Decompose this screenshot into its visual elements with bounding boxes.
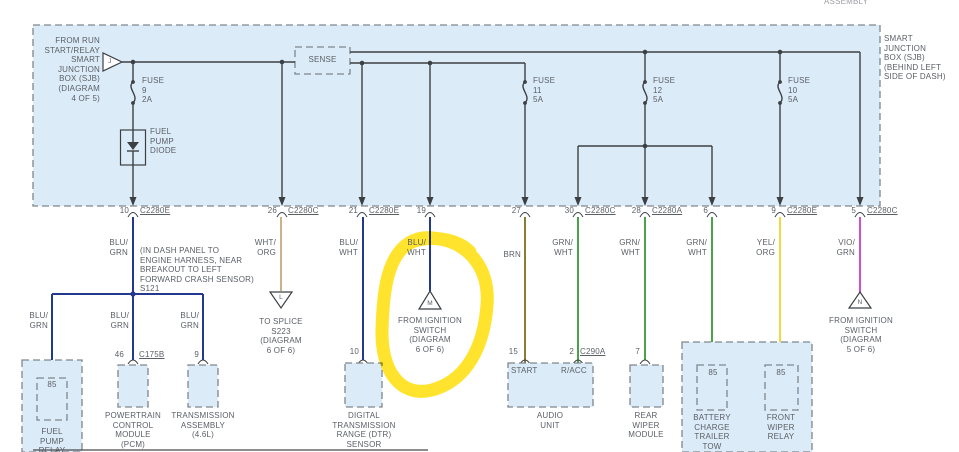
connector-link-c2280e-pin21[interactable]: C2280E xyxy=(369,206,399,216)
branch-label-blu-grn-1: BLU/ GRN xyxy=(8,311,48,330)
fuse-11-label: FUSE 11 5A xyxy=(533,76,555,105)
wire-label-grn-wht-30: GRN/ WHT xyxy=(533,238,573,257)
transmission-pin-9: 9 xyxy=(179,350,199,360)
battery-charge-label: BATTERY CHARGE TRAILER TOW xyxy=(677,413,747,451)
pin-number-5: 5 xyxy=(836,206,856,216)
connector-link-c2280a-pin28[interactable]: C2280A xyxy=(652,206,682,216)
dtr-sensor-label: DIGITAL TRANSMISSION RANGE (DTR) SENSOR xyxy=(319,411,409,449)
wire-label-grn-wht-6: GRN/ WHT xyxy=(667,238,707,257)
front-wiper-label: FRONT WIPER RELAY xyxy=(746,413,816,442)
triangle-n-letter: N xyxy=(854,298,866,308)
connector-link-c175b[interactable]: C175B xyxy=(139,350,164,360)
fuel-pump-relay-label: FUEL PUMP RELAY xyxy=(22,427,82,452)
from-ignition-switch-m-label: FROM IGNITION SWITCH (DIAGRAM 6 OF 6) xyxy=(385,316,475,354)
fuse-9-label: FUSE 9 2A xyxy=(142,76,164,105)
to-splice-s223-label: TO SPLICE S223 (DIAGRAM 6 OF 6) xyxy=(246,317,316,355)
pin-number-27: 27 xyxy=(501,206,521,216)
pcm-pin-46: 46 xyxy=(104,350,124,360)
audio-pin-2: 2 xyxy=(554,347,574,357)
connector-arcs-row1 xyxy=(128,213,865,218)
pin-number-30: 30 xyxy=(554,206,574,216)
triangle-m-letter: M xyxy=(424,299,436,309)
pin-number-21: 21 xyxy=(338,206,358,216)
connector-link-c290a[interactable]: C290A xyxy=(580,347,605,357)
pcm-box xyxy=(118,365,148,407)
highlight-circle xyxy=(382,238,487,392)
wiring-svg xyxy=(0,0,959,452)
rear-wiper-module-box xyxy=(630,365,663,407)
wire-label-blu-wht-19: BLU/ WHT xyxy=(386,238,426,257)
pin-number-10: 10 xyxy=(109,206,129,216)
harness-note-s121: (IN DASH PANEL TO ENGINE HARNESS, NEAR B… xyxy=(140,246,254,294)
fuse-12-label: FUSE 12 5A xyxy=(653,76,675,105)
triangle-l-letter: L xyxy=(275,293,287,303)
rear-wiper-label: REAR WIPER MODULE xyxy=(611,411,681,440)
fuel-pump-diode-label: FUEL PUMP DIODE xyxy=(150,127,176,156)
wire-label-yel-org: YEL/ ORG xyxy=(735,238,775,257)
battery-charge-pin-85: 85 xyxy=(698,368,728,378)
front-wiper-pin-85: 85 xyxy=(766,368,796,378)
audio-pin-15: 15 xyxy=(498,347,518,357)
wire-label-grn-wht-28: GRN/ WHT xyxy=(600,238,640,257)
sense-label: SENSE xyxy=(295,55,350,65)
transmission-box xyxy=(188,365,218,407)
connector-link-c2280c-pin30[interactable]: C2280C xyxy=(585,206,616,216)
audio-racc-label: R/ACC xyxy=(561,366,587,376)
rear-wiper-pin-7: 7 xyxy=(620,347,640,357)
pin-number-9: 9 xyxy=(756,206,776,216)
wire-label-vio-grn: VIO/ GRN xyxy=(815,238,855,257)
dtr-sensor-box xyxy=(345,363,382,407)
pin-number-28: 28 xyxy=(621,206,641,216)
from-run-note: FROM RUN START/RELAY SMART JUNCTION BOX … xyxy=(20,36,100,103)
pcm-label: POWERTRAIN CONTROL MODULE (PCM) xyxy=(93,411,173,449)
wire-label-brn: BRN xyxy=(481,250,521,260)
audio-start-label: START xyxy=(511,366,537,376)
connector-link-c2280c-pin5[interactable]: C2280C xyxy=(867,206,898,216)
pin-number-19: 19 xyxy=(406,206,426,216)
connector-link-c2280c-pin26[interactable]: C2280C xyxy=(288,206,319,216)
fuse-10-label: FUSE 10 5A xyxy=(788,76,810,105)
connector-link-c2280e-pin10[interactable]: C2280E xyxy=(140,206,170,216)
cut-off-top-text: ASSEMBLY xyxy=(824,0,868,7)
pin-number-6: 6 xyxy=(688,206,708,216)
splice-s121-dot xyxy=(130,291,135,296)
from-ignition-switch-n-label: FROM IGNITION SWITCH (DIAGRAM 5 OF 6) xyxy=(816,316,906,354)
wire-label-blu-grn: BLU/ GRN xyxy=(88,238,128,257)
branch-label-blu-grn-2: BLU/ GRN xyxy=(89,311,129,330)
transmission-label: TRANSMISSION ASSEMBLY (4.6L) xyxy=(163,411,243,440)
triangle-j-letter: J xyxy=(104,57,116,67)
wire-label-blu-wht-21: BLU/ WHT xyxy=(318,238,358,257)
wiring-diagram-page: ASSEMBLY FROM RUN START/RELAY SMART JUNC… xyxy=(0,0,959,452)
pin-number-26: 26 xyxy=(257,206,277,216)
audio-unit-label: AUDIO UNIT xyxy=(515,411,585,430)
sjb-location-note: SMART JUNCTION BOX (SJB) (BEHIND LEFT SI… xyxy=(884,34,946,82)
dtr-pin-10: 10 xyxy=(339,347,359,357)
branch-label-blu-grn-3: BLU/ GRN xyxy=(159,311,199,330)
fuel-relay-pin-85: 85 xyxy=(37,380,67,390)
connector-link-c2280e-pin9[interactable]: C2280E xyxy=(787,206,817,216)
